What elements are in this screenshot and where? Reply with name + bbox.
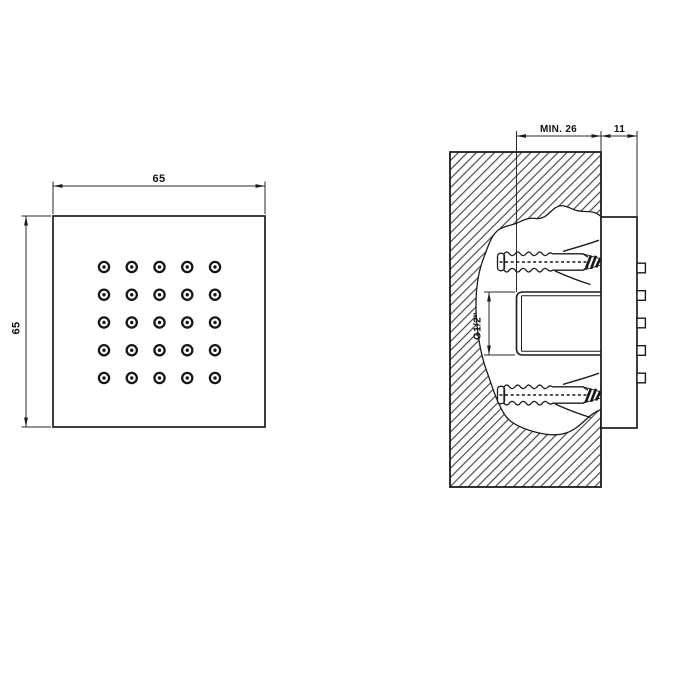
nozzle (154, 345, 164, 355)
nozzle (127, 262, 137, 272)
bump (637, 318, 645, 328)
nozzle (210, 317, 220, 327)
front-view: 65 65 (11, 173, 266, 427)
nozzle (127, 345, 137, 355)
bump (637, 291, 645, 301)
inlet-fitting (517, 292, 602, 355)
nozzle (99, 373, 109, 383)
dim-height-label: 65 (11, 321, 23, 334)
nozzle (182, 290, 192, 300)
nozzle (127, 373, 137, 383)
nozzle (99, 290, 109, 300)
dim-protrusion-label: 11 (614, 124, 625, 135)
dim-min-depth-label: MIN. 26 (540, 124, 577, 135)
arrowhead-down-icon (24, 418, 28, 428)
arrowhead-left-icon (601, 134, 611, 138)
dim-width-label: 65 (152, 173, 165, 185)
nozzle (154, 290, 164, 300)
dimension-width: 65 (53, 173, 265, 214)
nozzle (182, 317, 192, 327)
arrowhead-up-icon (24, 216, 28, 226)
nozzle (210, 262, 220, 272)
nozzle (154, 373, 164, 383)
bump (637, 346, 645, 356)
arrowhead-left-icon (517, 134, 527, 138)
bump (637, 263, 645, 273)
nozzle (127, 290, 137, 300)
dimension-height: 65 (11, 216, 52, 427)
arrowhead-right-icon (628, 134, 638, 138)
nozzle (210, 373, 220, 383)
nozzle (99, 345, 109, 355)
faceplate-side (601, 217, 637, 428)
arrowhead-right-icon (592, 134, 602, 138)
nozzle (182, 345, 192, 355)
bump (637, 373, 645, 383)
nozzle (182, 373, 192, 383)
nozzle (210, 345, 220, 355)
thread-size-label: G1/2" (473, 312, 484, 340)
nozzle (127, 317, 137, 327)
arrowhead-right-icon (256, 184, 266, 188)
arrowhead-left-icon (53, 184, 63, 188)
nozzle (99, 317, 109, 327)
nozzle (99, 262, 109, 272)
section-view: MIN. 26 11 G1/2" (450, 124, 645, 487)
nozzle-bumps (637, 263, 645, 383)
nozzle (182, 262, 192, 272)
nozzle (154, 317, 164, 327)
nozzle (154, 262, 164, 272)
nozzle (210, 290, 220, 300)
technical-drawing: 65 65 (0, 0, 700, 700)
